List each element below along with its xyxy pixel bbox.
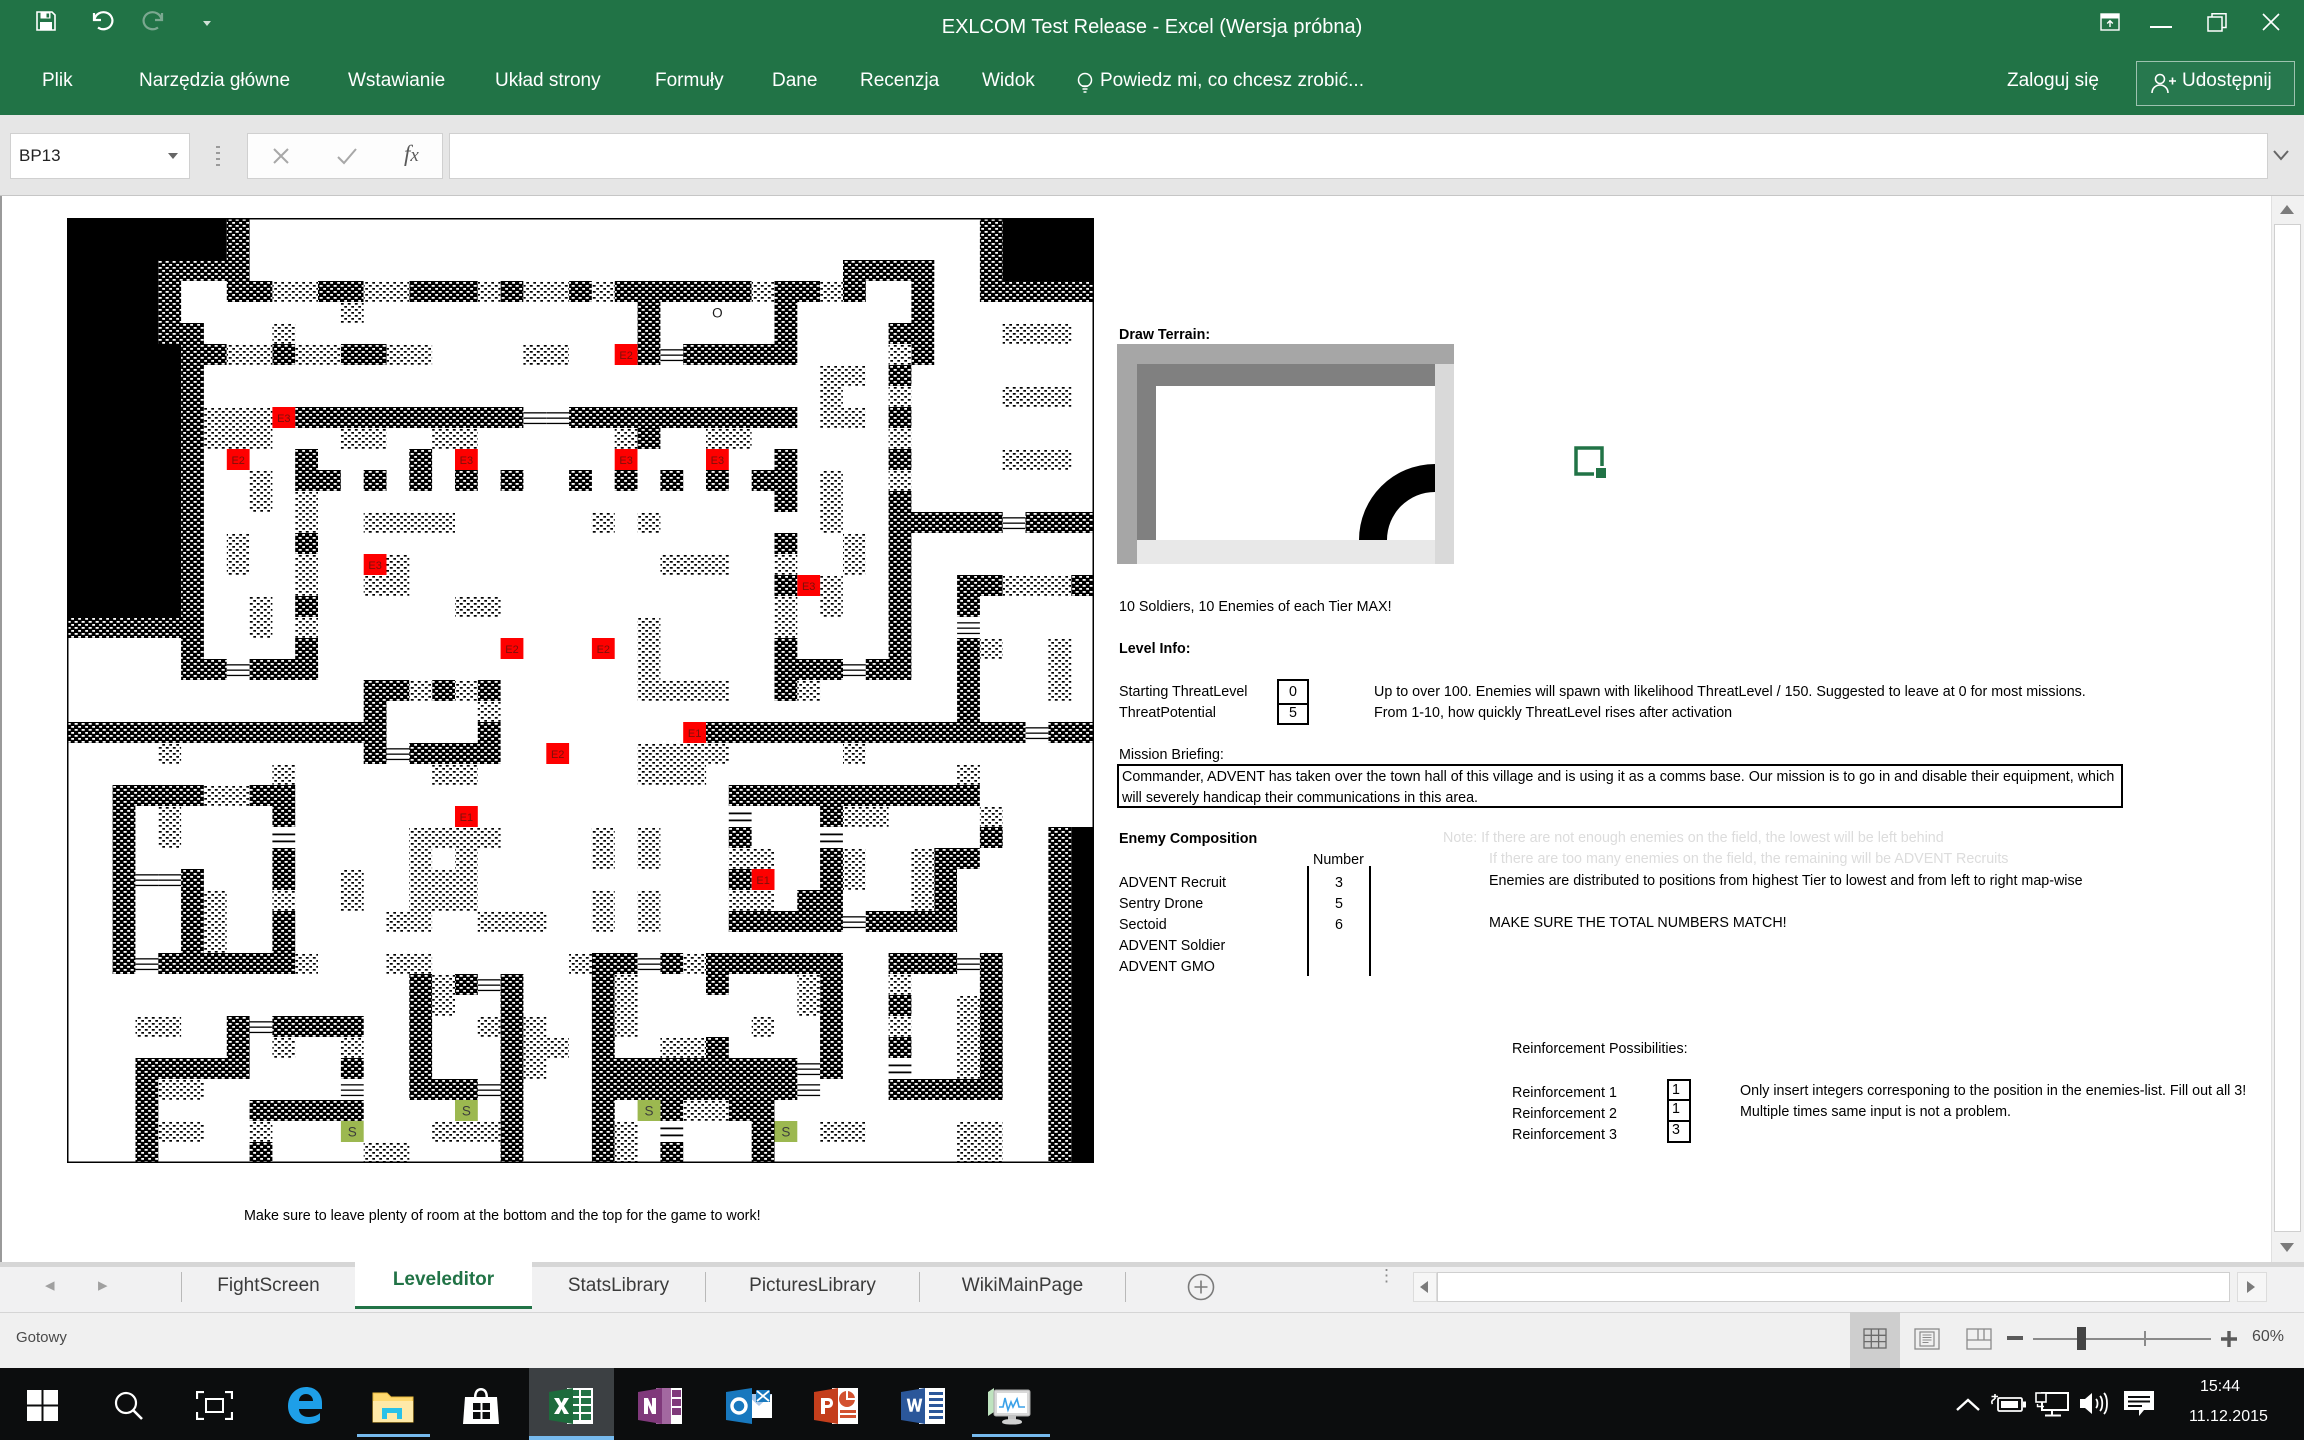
svg-text:E1: E1: [460, 812, 473, 824]
svg-text:E3: E3: [277, 413, 290, 425]
svg-text:E3: E3: [619, 455, 632, 467]
svg-text:E1: E1: [688, 728, 701, 740]
svg-text:E2: E2: [505, 644, 518, 656]
svg-text:S: S: [781, 1125, 790, 1140]
svg-text:S: S: [462, 1104, 471, 1119]
svg-text:E2: E2: [551, 749, 564, 761]
svg-text:S: S: [348, 1125, 357, 1140]
svg-text:E2: E2: [619, 350, 632, 362]
svg-text:S: S: [644, 1104, 653, 1119]
svg-text:O: O: [712, 306, 723, 321]
svg-text:E2: E2: [597, 644, 610, 656]
svg-text:E3: E3: [802, 581, 815, 593]
svg-text:E3: E3: [368, 560, 381, 572]
svg-text:E3: E3: [711, 455, 724, 467]
svg-text:E3: E3: [460, 455, 473, 467]
svg-text:E2: E2: [231, 455, 244, 467]
svg-text:E1: E1: [756, 875, 769, 887]
